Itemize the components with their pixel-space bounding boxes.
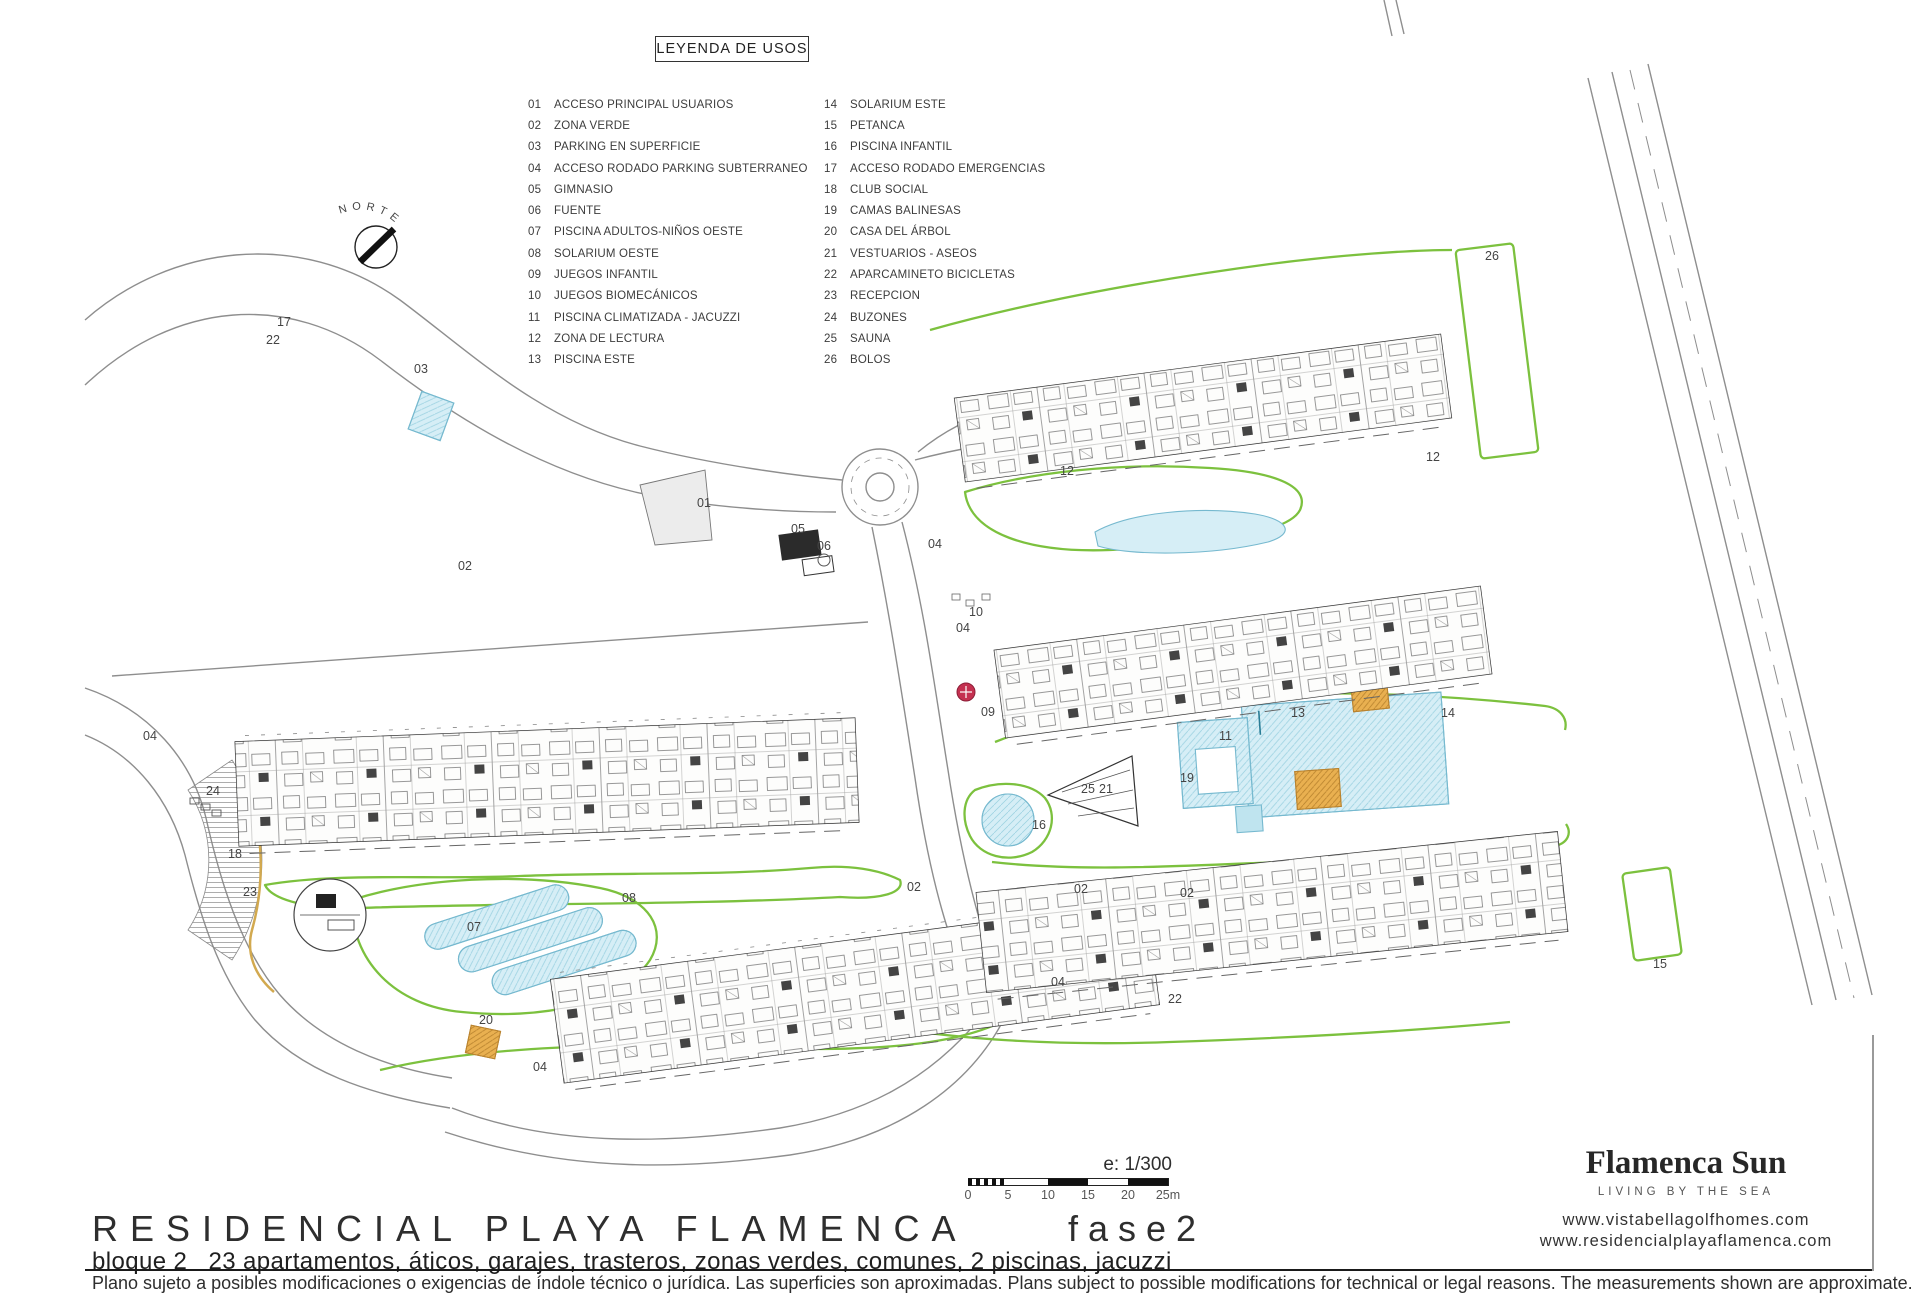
legend-column-2: 14SOLARIUM ESTE15PETANCA16PISCINA INFANT… bbox=[824, 94, 1045, 371]
plan-number-label: 06 bbox=[817, 539, 831, 553]
legend-item-label: FUENTE bbox=[554, 205, 601, 217]
legend-item-number: 17 bbox=[824, 163, 850, 175]
sun-swirl-icon bbox=[1638, 1042, 1734, 1138]
plan-number-label: 25 bbox=[1081, 782, 1095, 796]
plan-number-label: 12 bbox=[1426, 450, 1440, 464]
legend-item-label: PISCINA ESTE bbox=[554, 354, 635, 366]
scale-tick-label: 15 bbox=[1081, 1188, 1095, 1202]
legend-item-label: SOLARIUM OESTE bbox=[554, 248, 659, 260]
legend-item-number: 19 bbox=[824, 205, 850, 217]
plan-number-label: 08 bbox=[622, 891, 636, 905]
legend-item: 26BOLOS bbox=[824, 350, 1045, 371]
lagoon bbox=[1095, 511, 1285, 553]
legend-item-number: 26 bbox=[824, 354, 850, 366]
legend-item: 11PISCINA CLIMATIZADA - JACUZZI bbox=[528, 307, 796, 328]
building-bloque-1 bbox=[235, 712, 859, 854]
legend-item-number: 09 bbox=[528, 269, 554, 281]
scale-tick-label: 20 bbox=[1121, 1188, 1135, 1202]
legend-item-number: 11 bbox=[528, 312, 554, 324]
legend-item-number: 08 bbox=[528, 248, 554, 260]
legend-item: 12ZONA DE LECTURA bbox=[528, 328, 796, 349]
plan-number-label: 16 bbox=[1032, 818, 1046, 832]
legend: 01ACCESO PRINCIPAL USUARIOS02ZONA VERDE0… bbox=[528, 94, 1045, 371]
legend-item: 02ZONA VERDE bbox=[528, 115, 796, 136]
project-subtitle: bloque 2 23 apartamentos, áticos, garaje… bbox=[92, 1248, 1172, 1276]
plan-number-label: 13 bbox=[1291, 706, 1305, 720]
plan-number-label: 02 bbox=[907, 880, 921, 894]
legend-item-number: 22 bbox=[824, 269, 850, 281]
legend-item-number: 04 bbox=[528, 163, 554, 175]
legend-item-label: CASA DEL ÁRBOL bbox=[850, 226, 951, 238]
legend-item-number: 15 bbox=[824, 120, 850, 132]
legend-item-label: PARKING EN SUPERFICIE bbox=[554, 141, 700, 153]
legend-item: 24BUZONES bbox=[824, 307, 1045, 328]
legend-item-number: 07 bbox=[528, 226, 554, 238]
legend-item: 09JUEGOS INFANTIL bbox=[528, 264, 796, 285]
legend-item-label: CLUB SOCIAL bbox=[850, 184, 928, 196]
legend-item: 25SAUNA bbox=[824, 328, 1045, 349]
plan-number-label: 15 bbox=[1653, 957, 1667, 971]
brand-name: Flamenca Sun bbox=[1500, 1145, 1872, 1182]
plan-number-label: 18 bbox=[228, 847, 242, 861]
legend-item-label: JUEGOS BIOMECÁNICOS bbox=[554, 290, 698, 302]
plan-number-label: 09 bbox=[981, 705, 995, 719]
legend-item-number: 20 bbox=[824, 226, 850, 238]
fuente bbox=[818, 554, 830, 566]
legend-item: 14SOLARIUM ESTE bbox=[824, 94, 1045, 115]
legend-item: 20CASA DEL ÁRBOL bbox=[824, 222, 1045, 243]
legend-item-label: BOLOS bbox=[850, 354, 891, 366]
legend-item-label: GIMNASIO bbox=[554, 184, 613, 196]
url-playaflamenca: www.residencialplayaflamenca.com bbox=[1500, 1231, 1872, 1252]
plan-number-label: 07 bbox=[467, 920, 481, 934]
legend-item-label: ZONA VERDE bbox=[554, 120, 630, 132]
legend-item-label: ACCESO RODADO PARKING SUBTERRANEO bbox=[554, 163, 808, 175]
legend-item-number: 21 bbox=[824, 248, 850, 260]
plan-number-label: 19 bbox=[1180, 771, 1194, 785]
plan-number-label: 02 bbox=[1074, 882, 1088, 896]
scale-tick-label: 5 bbox=[1005, 1188, 1012, 1202]
legend-item: 21VESTUARIOS - ASEOS bbox=[824, 243, 1045, 264]
legend-item-label: APARCAMINETO BICICLETAS bbox=[850, 269, 1015, 281]
plan-number-label: 26 bbox=[1485, 249, 1499, 263]
plan-number-label: 12 bbox=[1060, 464, 1074, 478]
plan-number-label: 20 bbox=[479, 1013, 493, 1027]
legend-item-number: 02 bbox=[528, 120, 554, 132]
plan-number-label: 04 bbox=[1051, 975, 1065, 989]
legend-item-number: 12 bbox=[528, 333, 554, 345]
legend-item-number: 23 bbox=[824, 290, 850, 302]
scale-tick-label: 10 bbox=[1041, 1188, 1055, 1202]
plan-number-label: 04 bbox=[533, 1060, 547, 1074]
legend-item: 16PISCINA INFANTIL bbox=[824, 137, 1045, 158]
legend-item-label: RECEPCION bbox=[850, 290, 920, 302]
plan-number-label: 11 bbox=[1219, 729, 1232, 743]
svg-text:NORTE: NORTE bbox=[337, 200, 404, 227]
legend-title: LEYENDA DE USOS bbox=[655, 36, 809, 62]
legend-item-label: SOLARIUM ESTE bbox=[850, 99, 946, 111]
legend-item: 18CLUB SOCIAL bbox=[824, 179, 1045, 200]
legend-item: 22APARCAMINETO BICICLETAS bbox=[824, 264, 1045, 285]
legend-item: 07PISCINA ADULTOS-NIÑOS OESTE bbox=[528, 222, 796, 243]
titleblock-rule bbox=[85, 1269, 1874, 1271]
plan-number-label: 01 bbox=[697, 496, 711, 510]
legend-item-label: PETANCA bbox=[850, 120, 905, 132]
legend-item-number: 16 bbox=[824, 141, 850, 153]
plan-number-label: 04 bbox=[143, 729, 157, 743]
legend-item: 17ACCESO RODADO EMERGENCIAS bbox=[824, 158, 1045, 179]
brand-tagline: LIVING BY THE SEA bbox=[1500, 1186, 1872, 1198]
legend-item-label: ZONA DE LECTURA bbox=[554, 333, 664, 345]
scale-bar: e: 1/300 0510152025m bbox=[958, 1154, 1198, 1206]
url-vistabella: www.vistabellagolfhomes.com bbox=[1500, 1210, 1872, 1231]
legend-item-number: 05 bbox=[528, 184, 554, 196]
legend-item: 03PARKING EN SUPERFICIE bbox=[528, 137, 796, 158]
legend-item-number: 25 bbox=[824, 333, 850, 345]
legend-item: 23RECEPCION bbox=[824, 286, 1045, 307]
site-plan-sheet: NORTE 1722030201050604121210040902020208… bbox=[0, 0, 1920, 1280]
scale-ticks: 0510152025m bbox=[968, 1188, 1168, 1204]
legend-item-number: 10 bbox=[528, 290, 554, 302]
plan-number-label: 04 bbox=[928, 537, 942, 551]
legend-item-label: ACCESO PRINCIPAL USUARIOS bbox=[554, 99, 733, 111]
plan-number-label: 22 bbox=[1168, 992, 1182, 1006]
scale-ratio-label: e: 1/300 bbox=[1103, 1154, 1172, 1176]
pool-east bbox=[1177, 692, 1450, 836]
legend-item-number: 18 bbox=[824, 184, 850, 196]
legend-item-label: JUEGOS INFANTIL bbox=[554, 269, 658, 281]
juegos-infantil bbox=[957, 683, 975, 701]
plan-number-label: 21 bbox=[1099, 782, 1113, 796]
plan-number-label: 22 bbox=[266, 333, 280, 347]
legend-item: 04ACCESO RODADO PARKING SUBTERRANEO bbox=[528, 158, 796, 179]
legend-item: 15PETANCA bbox=[824, 115, 1045, 136]
logo-frame-border bbox=[1872, 1035, 1874, 1271]
plan-number-label: 02 bbox=[458, 559, 472, 573]
legend-item: 08SOLARIUM OESTE bbox=[528, 243, 796, 264]
brand-urls: www.vistabellagolfhomes.com www.residenc… bbox=[1500, 1210, 1872, 1252]
plan-number-label: 23 bbox=[243, 885, 257, 899]
legend-item: 05GIMNASIO bbox=[528, 179, 796, 200]
legend-item-label: BUZONES bbox=[850, 312, 907, 324]
plan-number-label: 03 bbox=[414, 362, 428, 376]
north-label: NORTE bbox=[337, 200, 404, 227]
legend-item-label: PISCINA CLIMATIZADA - JACUZZI bbox=[554, 312, 740, 324]
legend-item-label: ACCESO RODADO EMERGENCIAS bbox=[850, 163, 1045, 175]
legend-item: 01ACCESO PRINCIPAL USUARIOS bbox=[528, 94, 796, 115]
brand-logo: Flamenca Sun LIVING BY THE SEA www.vista… bbox=[1500, 1042, 1872, 1252]
plan-number-label: 05 bbox=[791, 522, 805, 536]
legend-item: 13PISCINA ESTE bbox=[528, 350, 796, 371]
legend-item-label: PISCINA INFANTIL bbox=[850, 141, 952, 153]
plan-number-label: 02 bbox=[1180, 886, 1194, 900]
legend-item-number: 13 bbox=[528, 354, 554, 366]
legend-item-label: VESTUARIOS - ASEOS bbox=[850, 248, 977, 260]
north-compass: NORTE bbox=[337, 200, 406, 268]
legend-item-number: 01 bbox=[528, 99, 554, 111]
legend-item-number: 14 bbox=[824, 99, 850, 111]
project-title: RESIDENCIAL PLAYA FLAMENCA bbox=[92, 1208, 968, 1250]
recepcion-building bbox=[294, 879, 366, 951]
disclaimer-text: Plano sujeto a posibles modificaciones o… bbox=[92, 1273, 1913, 1294]
petanca-area bbox=[1622, 867, 1682, 961]
plan-number-label: 17 bbox=[277, 315, 291, 329]
legend-item: 06FUENTE bbox=[528, 200, 796, 221]
legend-item-number: 03 bbox=[528, 141, 554, 153]
plan-number-label: 14 bbox=[1441, 706, 1455, 720]
scale-bar-graphic bbox=[968, 1178, 1170, 1187]
legend-item: 10JUEGOS BIOMECÁNICOS bbox=[528, 286, 796, 307]
plan-number-label: 04 bbox=[956, 621, 970, 635]
legend-item-number: 06 bbox=[528, 205, 554, 217]
bolos-area bbox=[1455, 243, 1538, 459]
phase-label: fase2 bbox=[1068, 1208, 1206, 1250]
legend-item: 19CAMAS BALINESAS bbox=[824, 200, 1045, 221]
legend-item-label: CAMAS BALINESAS bbox=[850, 205, 961, 217]
building-bloque-3 bbox=[976, 832, 1568, 1000]
legend-item-label: SAUNA bbox=[850, 333, 891, 345]
plan-number-label: 24 bbox=[206, 784, 220, 798]
plan-number-label: 10 bbox=[969, 605, 983, 619]
legend-item-number: 24 bbox=[824, 312, 850, 324]
scale-tick-label: 0 bbox=[965, 1188, 972, 1202]
legend-column-1: 01ACCESO PRINCIPAL USUARIOS02ZONA VERDE0… bbox=[528, 94, 796, 371]
scale-tick-label: 25m bbox=[1156, 1188, 1180, 1202]
legend-item-label: PISCINA ADULTOS-NIÑOS OESTE bbox=[554, 226, 743, 238]
